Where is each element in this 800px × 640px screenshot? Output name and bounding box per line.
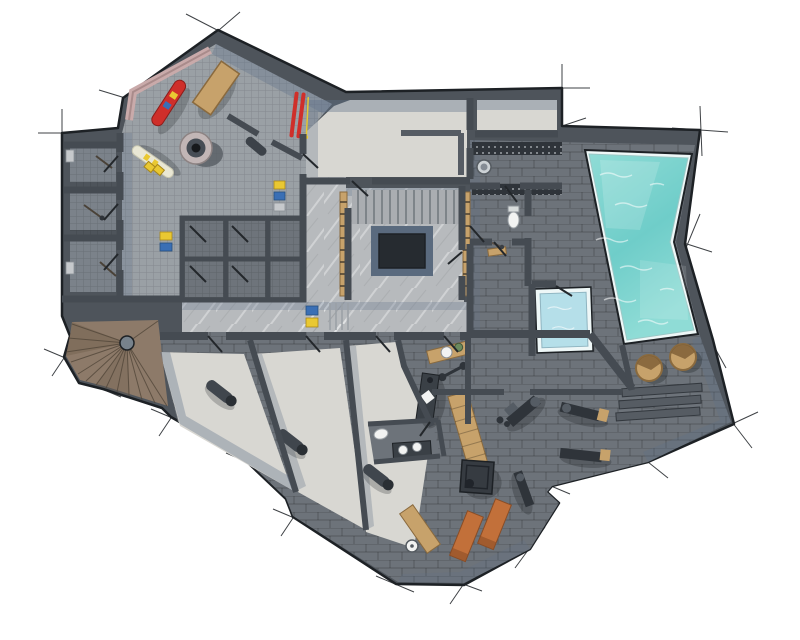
shadow-band (122, 133, 132, 298)
locker-cell-floor (185, 261, 223, 297)
rolled-mat (271, 427, 311, 463)
gear-box (274, 181, 285, 189)
drain-outer-ring (180, 132, 212, 164)
wall (64, 145, 118, 238)
wc-counter (392, 441, 431, 460)
machine-frame (506, 395, 541, 427)
building-walls (62, 30, 734, 585)
wooden-tub (670, 344, 702, 373)
tub-shadow (674, 349, 702, 373)
mat-roll-end (380, 477, 395, 492)
shadow-band (470, 140, 480, 332)
machine-wheel (528, 395, 542, 409)
plunge-pool (535, 287, 593, 353)
spiral-stair-post (120, 336, 134, 350)
machine-frame (560, 448, 603, 462)
drain-center (192, 144, 201, 153)
interior-walls (62, 98, 632, 530)
shadow-band (212, 44, 332, 114)
gear-box (274, 203, 285, 211)
table-towel (421, 390, 435, 404)
table-headrest (427, 377, 434, 384)
weight-plate (406, 540, 418, 552)
door-leaf (190, 266, 206, 282)
swimming-pool-water (589, 154, 694, 340)
step (622, 383, 702, 397)
broom (100, 262, 116, 276)
tub-shadow (640, 360, 668, 384)
tick-line (38, 109, 86, 157)
board-shadow (153, 84, 196, 138)
ski-pole (303, 97, 311, 137)
mat-shadow (272, 430, 309, 463)
counter-top (427, 341, 471, 364)
ski-room-objects (66, 50, 318, 327)
locker-cell-floor (227, 261, 265, 297)
stair-railing-left (340, 192, 347, 296)
stairwell-floor (346, 188, 464, 302)
mat-roll (275, 427, 305, 454)
door-leaf (208, 336, 222, 352)
machine-wheel (515, 472, 525, 482)
box-handle (465, 479, 475, 489)
tick-line (99, 90, 145, 104)
gym-mat (450, 511, 484, 562)
wc-sink (413, 443, 422, 452)
floor-plan: Basement floor plan – ski room, cellars,… (0, 0, 800, 640)
corridor-texture (302, 177, 346, 332)
toilet-bowl (508, 212, 519, 228)
gym-mat (478, 499, 512, 550)
wall (228, 116, 302, 158)
door-leaf (494, 242, 506, 256)
ski-room-floor (122, 44, 332, 298)
machine-seat (504, 402, 518, 416)
locker-walls (182, 218, 304, 300)
barbell-plate (437, 372, 448, 383)
machine-block (600, 449, 611, 461)
tick-line (538, 118, 586, 134)
small-bench (244, 135, 268, 157)
cellar-room-floor (70, 146, 116, 182)
kettlebell (497, 417, 504, 424)
gear-box (160, 243, 172, 251)
tick-line (532, 478, 570, 494)
plyo-box (460, 460, 504, 501)
locker-walls (182, 218, 304, 300)
technical-room-floor (306, 100, 467, 177)
plunge-pool-water (540, 292, 588, 348)
cellar-room-floor (70, 240, 116, 292)
mat-roll-end (294, 442, 309, 457)
shower-squeegee (480, 238, 502, 247)
shadow-band (254, 354, 306, 490)
snowboard-red (147, 78, 197, 138)
weight-plate-hub (410, 544, 414, 548)
massage-room-objects (373, 341, 471, 459)
drain-shadow (189, 141, 223, 167)
gear-box (274, 192, 285, 200)
pole-basket (304, 135, 308, 139)
tick-line (444, 563, 482, 604)
mat-shadow (358, 465, 395, 498)
ski-boots (144, 161, 164, 175)
floor-plan-canvas: Basement floor plan – ski room, cellars,… (0, 0, 800, 640)
outer-wall-footprint (62, 30, 734, 585)
corridor-texture (182, 302, 470, 332)
rolled-mat (357, 462, 397, 498)
ski (296, 92, 306, 138)
counter-plant (454, 342, 464, 352)
shadow-band (182, 302, 470, 310)
wall (401, 133, 461, 175)
shadow-band (306, 112, 318, 177)
wooden-bench (188, 61, 245, 125)
relax-room-floor (160, 352, 292, 490)
sauna-bench-grate (472, 142, 562, 155)
utility-room-floor (477, 100, 557, 130)
tub-body (670, 344, 696, 370)
skis-red (289, 91, 313, 139)
railing-rail (340, 192, 347, 296)
box-body (460, 460, 494, 494)
cellar-floor-texture (70, 146, 116, 292)
door-leaf (470, 226, 484, 242)
mat-shadow (201, 381, 238, 414)
tub-shade (671, 344, 695, 359)
tub-body (636, 355, 662, 381)
door-leaf (232, 226, 248, 242)
tick-line (662, 214, 712, 272)
shadow-band (643, 336, 731, 462)
tick-line (44, 337, 82, 376)
door-leaf (306, 336, 320, 352)
bench-shadow (191, 65, 244, 126)
exercise-machine (496, 385, 550, 437)
kettlebell (504, 421, 510, 427)
tick-line (534, 64, 590, 112)
board-deck (150, 78, 188, 128)
walkway-planks (448, 391, 488, 470)
pool-rim (585, 150, 698, 344)
door-leaf (420, 422, 430, 436)
ski-room-floor-texture (122, 44, 332, 298)
stair-treads (358, 190, 454, 224)
wood-walkway (400, 505, 441, 553)
main-staircase (330, 190, 470, 330)
gear-box (306, 306, 318, 315)
door-leaf (104, 254, 118, 270)
sauna-bench-grate (472, 184, 562, 195)
exercise-machine (507, 470, 537, 517)
door-leaf (556, 286, 572, 296)
locker-floor-texture (185, 221, 302, 297)
door-leaf (505, 186, 517, 202)
tick-line (83, 381, 121, 397)
exercise-machine (556, 398, 612, 431)
stairwell-texture (346, 188, 464, 302)
board-binding (163, 101, 172, 110)
tick-line (672, 106, 728, 156)
shadow-band (348, 346, 374, 530)
sauna-stove-core (481, 164, 488, 171)
boot (144, 161, 155, 172)
exercise-machine (559, 445, 613, 470)
tick-line (376, 576, 414, 592)
sauna-area (472, 142, 562, 256)
box-inner (465, 465, 488, 488)
sauna-grate-slats (472, 142, 562, 155)
table-shadow (416, 375, 449, 430)
mat (450, 511, 484, 562)
shadow-band (160, 352, 292, 490)
door-leaf (444, 336, 458, 352)
mat-roll (204, 378, 234, 405)
locker-cell-floor (269, 221, 302, 257)
door-leaf (352, 181, 368, 196)
door-leaf (376, 336, 390, 352)
drain-mid-ring (187, 139, 206, 158)
gear-box (160, 232, 172, 240)
machine-wheel (561, 403, 572, 414)
pool-light-patch (640, 260, 688, 320)
tick-line (695, 312, 726, 368)
wall (532, 284, 556, 356)
door-leaf (104, 156, 118, 172)
shadow-band (477, 100, 557, 110)
relax-room-floor (348, 342, 432, 548)
bench-top (193, 61, 240, 115)
survey-ticks (38, 12, 758, 604)
railing-balusters (463, 202, 470, 286)
wall (250, 340, 366, 530)
wc-toilet (373, 427, 389, 440)
plank-joints (452, 404, 486, 459)
wc-sink (399, 446, 408, 455)
cellar-items (66, 150, 116, 276)
board-shadow (135, 140, 184, 180)
machine-shadow (502, 392, 550, 437)
toilet (508, 206, 519, 228)
tick-line (273, 497, 311, 536)
pool-waves (596, 173, 674, 324)
locker-cell-floor (227, 221, 265, 257)
relax-room-floor (254, 348, 366, 530)
railing-balusters (340, 202, 347, 286)
spiral-stair-shade (95, 343, 130, 396)
wall (432, 345, 632, 392)
walkway-planks (400, 505, 441, 553)
barbell-plate (458, 360, 469, 371)
corridor-floor-vertical (302, 177, 346, 332)
mat-roll (361, 462, 391, 489)
massage-table (415, 373, 449, 430)
stair-railing-right (463, 192, 470, 296)
table-body (416, 373, 440, 423)
spiral-stair-floor (66, 320, 168, 406)
ski (289, 91, 299, 137)
tick-line (226, 453, 264, 469)
wall-radiator-line (129, 50, 210, 120)
wc-fixtures (373, 427, 432, 459)
corridor-floor-horizontal (182, 302, 470, 332)
snowboard-white (130, 138, 184, 183)
board-binding (169, 91, 178, 100)
tick-line (515, 527, 545, 568)
door-leaf (448, 252, 462, 264)
tick-line (706, 396, 758, 448)
door-leaf (303, 154, 318, 168)
mat (478, 499, 512, 550)
door-leaf (232, 266, 248, 282)
spiral-stair-treads (66, 321, 167, 406)
broom-head (100, 216, 105, 221)
spiral-staircase (66, 320, 168, 406)
wc-floor (368, 420, 440, 462)
barbell (437, 360, 469, 382)
wood-walkway (448, 391, 488, 470)
door-leaf (190, 226, 206, 242)
sauna-grate-slats (472, 184, 562, 195)
sauna-stove (477, 160, 491, 174)
toilet-tank (508, 206, 519, 212)
machine-block (597, 408, 610, 422)
wall (398, 338, 468, 426)
machine-shadow (559, 449, 612, 470)
gear-box (306, 318, 318, 327)
cellar-room-floor (70, 192, 116, 230)
board-binding (151, 159, 159, 167)
storage-box (66, 262, 74, 274)
door-leaf (104, 204, 118, 220)
shadow-band (306, 100, 467, 112)
spa-gym-floor (160, 140, 731, 583)
squeegee-head (500, 245, 504, 249)
wooden-tub (636, 355, 668, 384)
spa-wood-bench (488, 247, 507, 256)
floors (66, 44, 731, 583)
locker-cell-floor (269, 261, 302, 297)
board-binding (143, 153, 151, 161)
pool-light-patch (600, 160, 660, 230)
deck-steps (616, 383, 702, 421)
tick-line (186, 12, 252, 48)
counter-sink (440, 346, 453, 359)
mat-end (478, 536, 497, 550)
machine-shadow (507, 470, 537, 517)
wall-shadows (122, 44, 731, 583)
stair-void (379, 234, 425, 268)
box-shadow (461, 464, 503, 501)
boot (153, 164, 164, 175)
massage-counter (427, 341, 471, 364)
tick-line (628, 446, 668, 478)
plunge-pool-rim (535, 287, 593, 353)
machine-frame (513, 470, 534, 507)
wall-radiator-bench (129, 50, 210, 120)
broom (96, 156, 112, 168)
rolled-mats (200, 378, 397, 498)
broom (84, 205, 102, 218)
step (619, 395, 701, 409)
machine-shadow (556, 403, 610, 431)
pool-deck-objects (616, 344, 702, 421)
board-deck (130, 144, 175, 180)
tub-shade (637, 355, 661, 370)
spiral-stair-shade (66, 322, 127, 356)
barbell-bar (440, 364, 466, 378)
storage-box (66, 150, 74, 162)
step (616, 407, 700, 421)
locker-cell-floor (185, 221, 223, 257)
machine-frame (560, 402, 601, 421)
tick-line (151, 397, 189, 436)
pool-area (535, 150, 698, 353)
mat-end (450, 548, 469, 562)
stair-flight (352, 190, 462, 224)
doors (104, 154, 572, 436)
shadow-band (398, 540, 530, 583)
stair-void-frame (371, 226, 433, 276)
wall (368, 420, 444, 462)
wall (470, 334, 632, 388)
railing-rail (463, 192, 470, 296)
mat-roll-end (223, 393, 238, 408)
gym-objects (400, 360, 613, 561)
tick-line (318, 80, 372, 102)
lower-steps (330, 303, 348, 330)
rolled-mat (200, 378, 240, 414)
spa-gym-floor-texture (160, 140, 731, 583)
bench-body (244, 135, 268, 157)
gear-boxes (160, 181, 318, 327)
locker-block (180, 216, 306, 300)
plunge-waves (548, 306, 575, 330)
floor-drain (180, 132, 223, 167)
shadow-band (346, 188, 464, 196)
